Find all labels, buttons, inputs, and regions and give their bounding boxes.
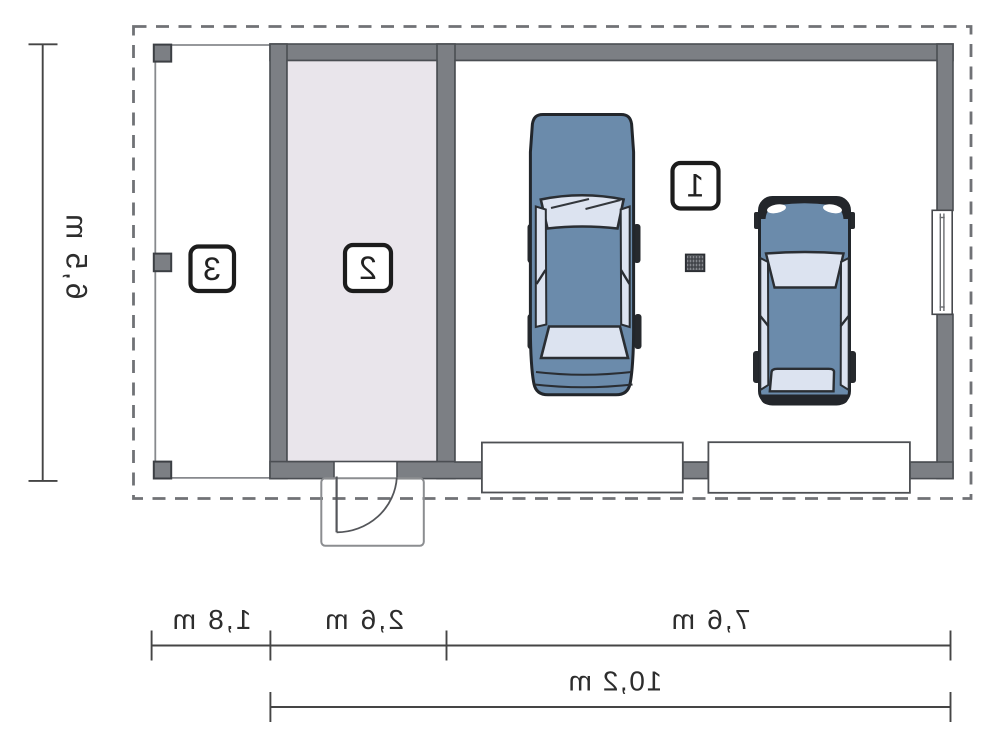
svg-text:1: 1 bbox=[687, 168, 705, 204]
svg-text:7,6 m: 7,6 m bbox=[669, 604, 750, 635]
svg-text:10,2 m: 10,2 m bbox=[567, 666, 662, 697]
svg-text:6,5 m: 6,5 m bbox=[59, 211, 92, 299]
svg-text:1,8 m: 1,8 m bbox=[170, 604, 251, 635]
svg-text:2,6 m: 2,6 m bbox=[323, 604, 404, 635]
svg-text:3: 3 bbox=[203, 251, 221, 287]
svg-text:2: 2 bbox=[359, 250, 377, 286]
